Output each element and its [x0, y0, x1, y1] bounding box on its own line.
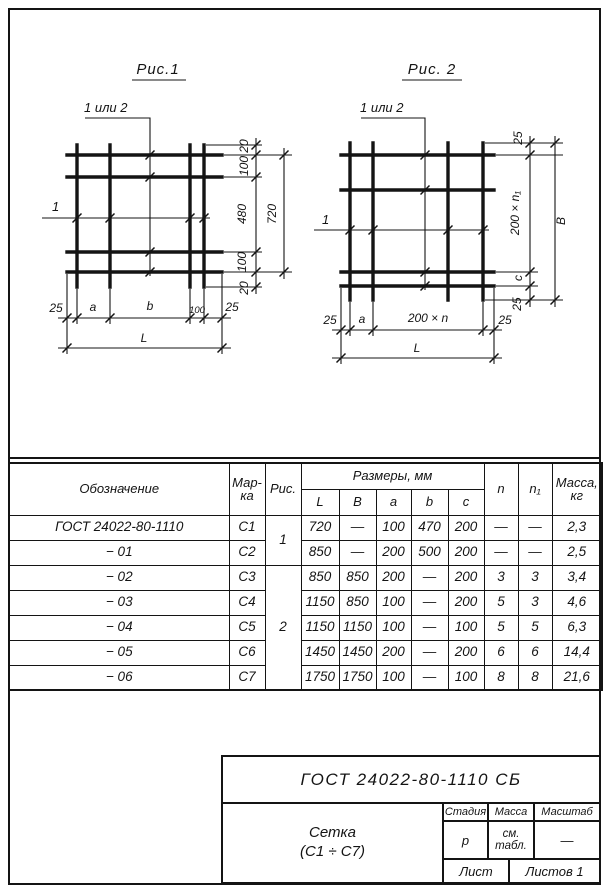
- fig2-dim-L: L: [414, 341, 421, 355]
- mass-value: см. табл.: [489, 822, 535, 860]
- fig1-dim-20-bottom: 20: [237, 281, 251, 296]
- cell-B: 850: [339, 565, 376, 590]
- stage-value: р: [444, 822, 489, 860]
- cell-n1: 5: [518, 615, 552, 640]
- table-row: − 04 С5 1150 1150 100 — 100 5 5 6,3: [9, 615, 602, 640]
- cell-mass: 3,4: [552, 565, 602, 590]
- cell-L: 720: [301, 515, 339, 540]
- cell-B: 850: [339, 590, 376, 615]
- fig2-dim-200n: 200 × n: [407, 311, 449, 325]
- cell-a: 100: [376, 515, 411, 540]
- fig1-dim-100-edge: 100: [189, 305, 206, 316]
- fig1-dim-720: 720: [265, 204, 279, 224]
- col-header-sizes: Размеры, мм: [301, 463, 484, 489]
- cell-n: —: [484, 515, 518, 540]
- fig1-dim-25-left: 25: [48, 301, 63, 315]
- cell-a: 200: [376, 640, 411, 665]
- fig2-dim-25-right: 25: [497, 313, 512, 327]
- cell-c: 100: [448, 615, 484, 640]
- cell-n: 5: [484, 590, 518, 615]
- cell-designation: − 01: [9, 540, 229, 565]
- cell-L: 850: [301, 565, 339, 590]
- fig2-wire-type-label: 1 или 2: [360, 100, 404, 115]
- drawing-name: Сетка (С1 ÷ С7): [223, 804, 444, 882]
- cell-designation: − 02: [9, 565, 229, 590]
- fig2-title: Рис. 2: [408, 61, 457, 78]
- col-header-designation: Обозначение: [9, 463, 229, 515]
- mass-label: Масса: [489, 804, 535, 822]
- cell-L: 1150: [301, 590, 339, 615]
- cell-designation: − 06: [9, 665, 229, 690]
- cell-c: 100: [448, 665, 484, 690]
- cell-mass: 21,6: [552, 665, 602, 690]
- cell-mark: С5: [229, 615, 265, 640]
- cell-b: 470: [411, 515, 448, 540]
- cell-mark: С2: [229, 540, 265, 565]
- figures-table-divider: [8, 457, 601, 459]
- fig2-mesh: [341, 143, 494, 300]
- col-header-n1: n₁: [518, 463, 552, 515]
- cell-n: 6: [484, 640, 518, 665]
- cell-mass: 4,6: [552, 590, 602, 615]
- fig1-dim-L: L: [141, 331, 148, 345]
- cell-n1: 6: [518, 640, 552, 665]
- figures-area: Рис.1 1 или 2 1: [8, 8, 601, 457]
- fig2-dim-200n1: 200 × n₁: [508, 191, 522, 236]
- cell-mass: 2,3: [552, 515, 602, 540]
- cell-L: 1150: [301, 615, 339, 640]
- cell-L: 850: [301, 540, 339, 565]
- fig1-dim-20-top: 20: [237, 139, 251, 154]
- fig2-dim-25-top: 25: [511, 131, 525, 146]
- cell-a: 100: [376, 590, 411, 615]
- table-row: − 05 С6 1450 1450 200 — 200 6 6 14,4: [9, 640, 602, 665]
- table-row: ГОСТ 24022-80-1110 С1 1 720 — 100 470 20…: [9, 515, 602, 540]
- fig2-dim-c: c: [511, 275, 525, 281]
- title-block-grid: Стадия Масса Масштаб р см. табл. — Лист …: [444, 804, 599, 882]
- cell-n: 3: [484, 565, 518, 590]
- cell-L: 1750: [301, 665, 339, 690]
- fig2-dim-25-bottom: 25: [510, 297, 524, 312]
- cell-b: —: [411, 565, 448, 590]
- cell-b: —: [411, 615, 448, 640]
- fig1-title: Рис.1: [136, 61, 179, 78]
- fig1-dim-100-bottom: 100: [235, 252, 249, 272]
- cell-n: 5: [484, 615, 518, 640]
- col-header-mass: Масса, кг: [552, 463, 602, 515]
- fig1-dim-25-right: 25: [224, 300, 239, 314]
- cell-n: —: [484, 540, 518, 565]
- fig1-dim-480: 480: [235, 204, 249, 224]
- cell-n: 8: [484, 665, 518, 690]
- cell-b: —: [411, 665, 448, 690]
- cell-b: 500: [411, 540, 448, 565]
- fig1-wire1-label: 1: [52, 199, 59, 214]
- cell-L: 1450: [301, 640, 339, 665]
- fig1-dim-a: a: [90, 300, 97, 314]
- cell-designation: − 03: [9, 590, 229, 615]
- cell-mass: 6,3: [552, 615, 602, 640]
- fig1-dim-b: b: [147, 299, 154, 313]
- fig2-dim-a: a: [359, 312, 366, 326]
- cell-a: 100: [376, 615, 411, 640]
- col-header-c: c: [448, 489, 484, 515]
- cell-c: 200: [448, 515, 484, 540]
- cell-mark: С1: [229, 515, 265, 540]
- table-row: − 01 С2 850 — 200 500 200 — — 2,5: [9, 540, 602, 565]
- spec-table: Обозначение Мар- ка Рис. Размеры, мм n n…: [8, 462, 603, 691]
- stage-label: Стадия: [444, 804, 489, 822]
- fig1-dim-100-top: 100: [237, 156, 251, 176]
- cell-B: 1450: [339, 640, 376, 665]
- sheet-label: Лист: [444, 860, 510, 882]
- drawing-name-line1: Сетка: [309, 824, 356, 843]
- cell-designation: − 04: [9, 615, 229, 640]
- cell-c: 200: [448, 565, 484, 590]
- figure-2: Рис. 2 1 или 2 1: [314, 61, 568, 364]
- cell-a: 200: [376, 540, 411, 565]
- table-row: − 03 С4 1150 850 100 — 200 5 3 4,6: [9, 590, 602, 615]
- col-header-n: n: [484, 463, 518, 515]
- cell-designation: ГОСТ 24022-80-1110: [9, 515, 229, 540]
- cell-n1: 3: [518, 565, 552, 590]
- col-header-B: B: [339, 489, 376, 515]
- col-header-mark: Мар- ка: [229, 463, 265, 515]
- drawing-name-line2: (С1 ÷ С7): [300, 843, 365, 862]
- cell-a: 100: [376, 665, 411, 690]
- col-header-b: b: [411, 489, 448, 515]
- cell-mark: С7: [229, 665, 265, 690]
- cell-c: 200: [448, 540, 484, 565]
- cell-n1: 8: [518, 665, 552, 690]
- fig2-dim-B: B: [554, 217, 568, 225]
- cell-n1: —: [518, 540, 552, 565]
- figure-1: Рис.1 1 или 2 1: [42, 61, 292, 354]
- cell-B: —: [339, 515, 376, 540]
- fig1-mesh: [67, 145, 222, 287]
- cell-designation: − 05: [9, 640, 229, 665]
- col-header-a: a: [376, 489, 411, 515]
- fig2-leader-line: [361, 118, 425, 290]
- fig2-dim-25-left: 25: [322, 313, 337, 327]
- col-header-L: L: [301, 489, 339, 515]
- cell-b: —: [411, 590, 448, 615]
- cell-a: 200: [376, 565, 411, 590]
- cell-B: —: [339, 540, 376, 565]
- cell-c: 200: [448, 590, 484, 615]
- table-row: − 02 С3 2 850 850 200 — 200 3 3 3,4: [9, 565, 602, 590]
- scale-value: —: [535, 822, 599, 860]
- title-block: ГОСТ 24022-80-1110 СБ Сетка (С1 ÷ С7) Ст…: [221, 755, 601, 884]
- cell-mass: 2,5: [552, 540, 602, 565]
- col-header-fig: Рис.: [265, 463, 301, 515]
- cell-b: —: [411, 640, 448, 665]
- sheets-count-label: Листов 1: [510, 860, 599, 882]
- cell-mark: С6: [229, 640, 265, 665]
- cell-fig-group-2: 2: [265, 565, 301, 690]
- cell-mass: 14,4: [552, 640, 602, 665]
- cell-mark: С4: [229, 590, 265, 615]
- document-number: ГОСТ 24022-80-1110 СБ: [223, 757, 599, 804]
- drawing-sheet: Рис.1 1 или 2 1: [0, 0, 610, 893]
- cell-B: 1150: [339, 615, 376, 640]
- fig2-right-dims: 25 200 × n₁ c 25 B: [485, 131, 568, 312]
- cell-n1: —: [518, 515, 552, 540]
- scale-label: Масштаб: [535, 804, 599, 822]
- cell-mark: С3: [229, 565, 265, 590]
- fig1-wire-type-label: 1 или 2: [84, 100, 128, 115]
- cell-n1: 3: [518, 590, 552, 615]
- cell-c: 200: [448, 640, 484, 665]
- table-row: − 06 С7 1750 1750 100 — 100 8 8 21,6: [9, 665, 602, 690]
- fig2-wire1-label: 1: [322, 212, 329, 227]
- cell-B: 1750: [339, 665, 376, 690]
- cell-fig-group-1: 1: [265, 515, 301, 565]
